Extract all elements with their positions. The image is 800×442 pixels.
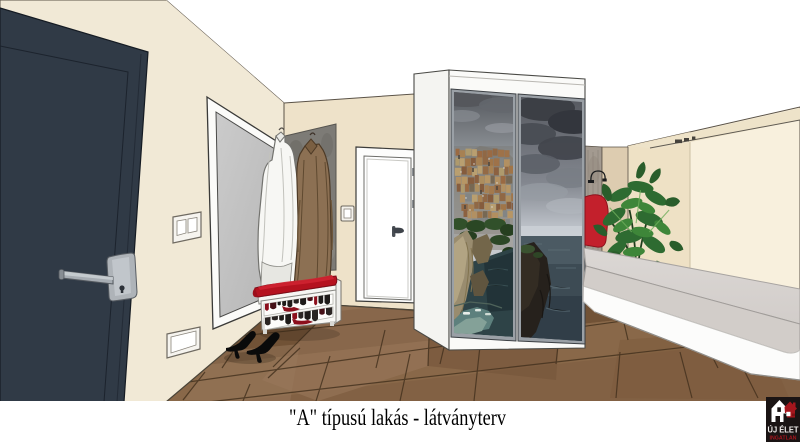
svg-text:"A" típusú lakás - látványterv: "A" típusú lakás - látványterv (289, 405, 506, 430)
svg-text:ÚJ ÉLET: ÚJ ÉLET (768, 424, 799, 435)
svg-text:INGATLAN: INGATLAN (770, 436, 797, 442)
